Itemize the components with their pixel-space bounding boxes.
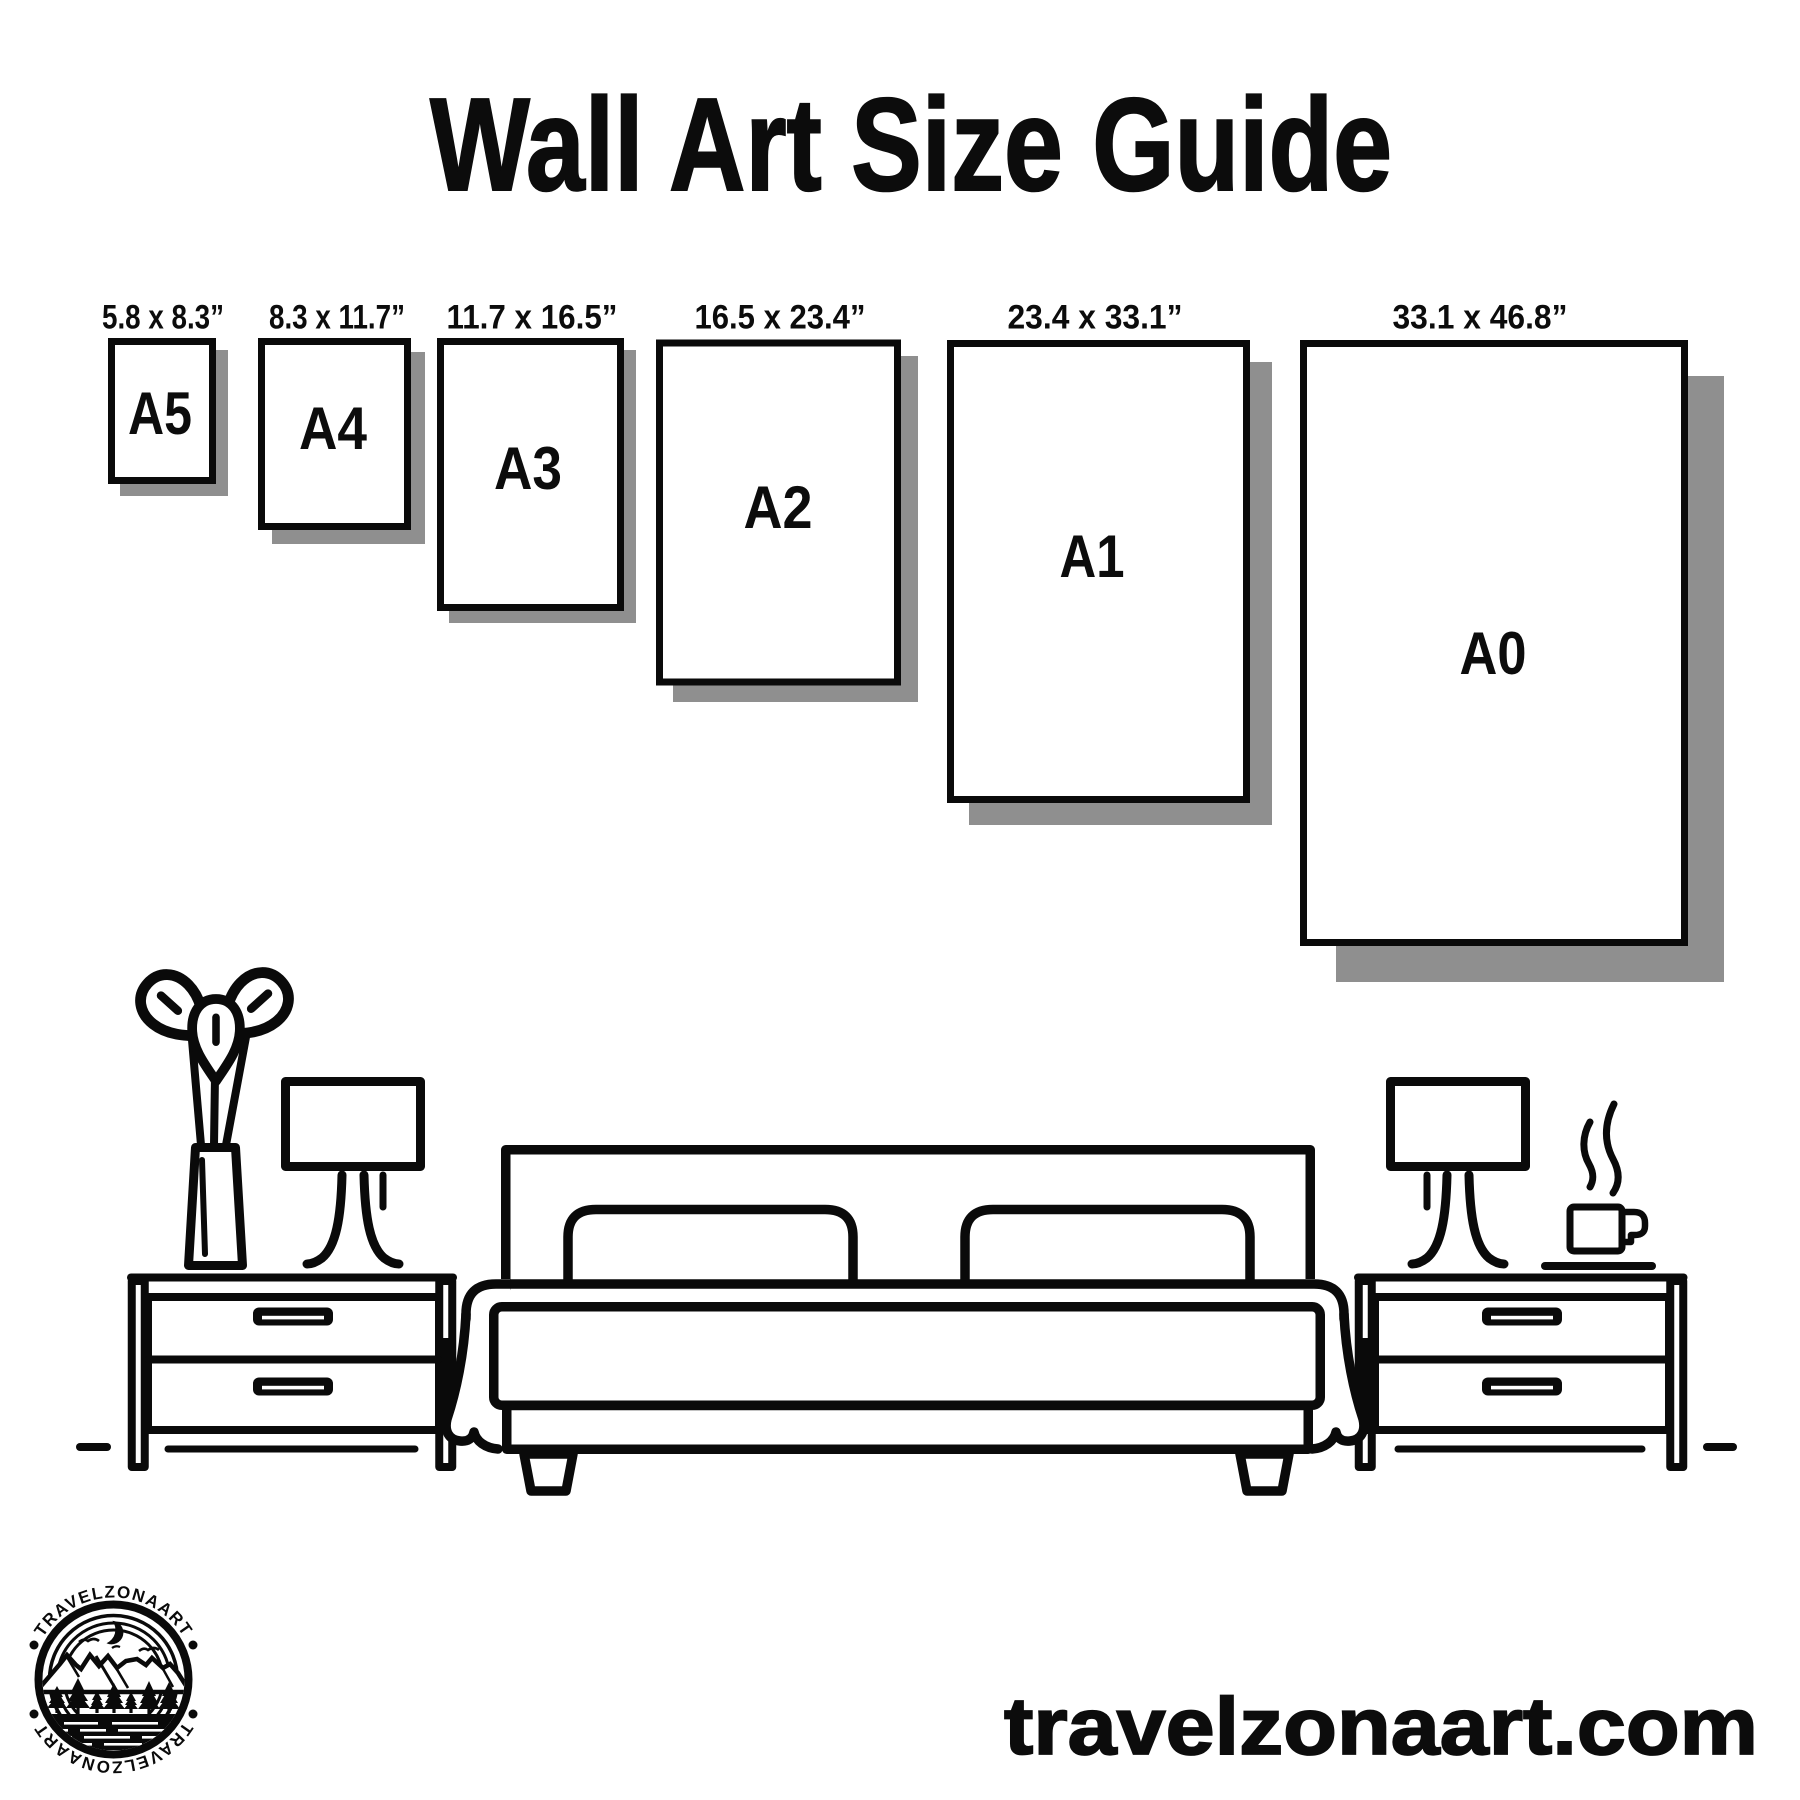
svg-text:A5: A5 <box>128 380 192 447</box>
svg-text:travelzonaart.com: travelzonaart.com <box>1004 1682 1758 1772</box>
svg-text:11.7 x 16.5”: 11.7 x 16.5” <box>447 299 618 337</box>
svg-text:23.4 x 33.1”: 23.4 x 33.1” <box>1008 299 1183 337</box>
svg-text:16.5 x 23.4”: 16.5 x 23.4” <box>695 299 866 337</box>
svg-text:A4: A4 <box>299 395 368 462</box>
svg-text:8.3 x 11.7”: 8.3 x 11.7” <box>269 299 405 337</box>
svg-text:Wall Art Size Guide: Wall Art Size Guide <box>430 71 1392 218</box>
svg-text:5.8 x 8.3”: 5.8 x 8.3” <box>102 299 224 337</box>
svg-text:33.1 x 46.8”: 33.1 x 46.8” <box>1393 299 1568 337</box>
svg-text:A1: A1 <box>1060 523 1125 590</box>
svg-text:A0: A0 <box>1460 620 1527 687</box>
svg-text:A2: A2 <box>744 474 813 541</box>
svg-text:A3: A3 <box>494 435 562 502</box>
